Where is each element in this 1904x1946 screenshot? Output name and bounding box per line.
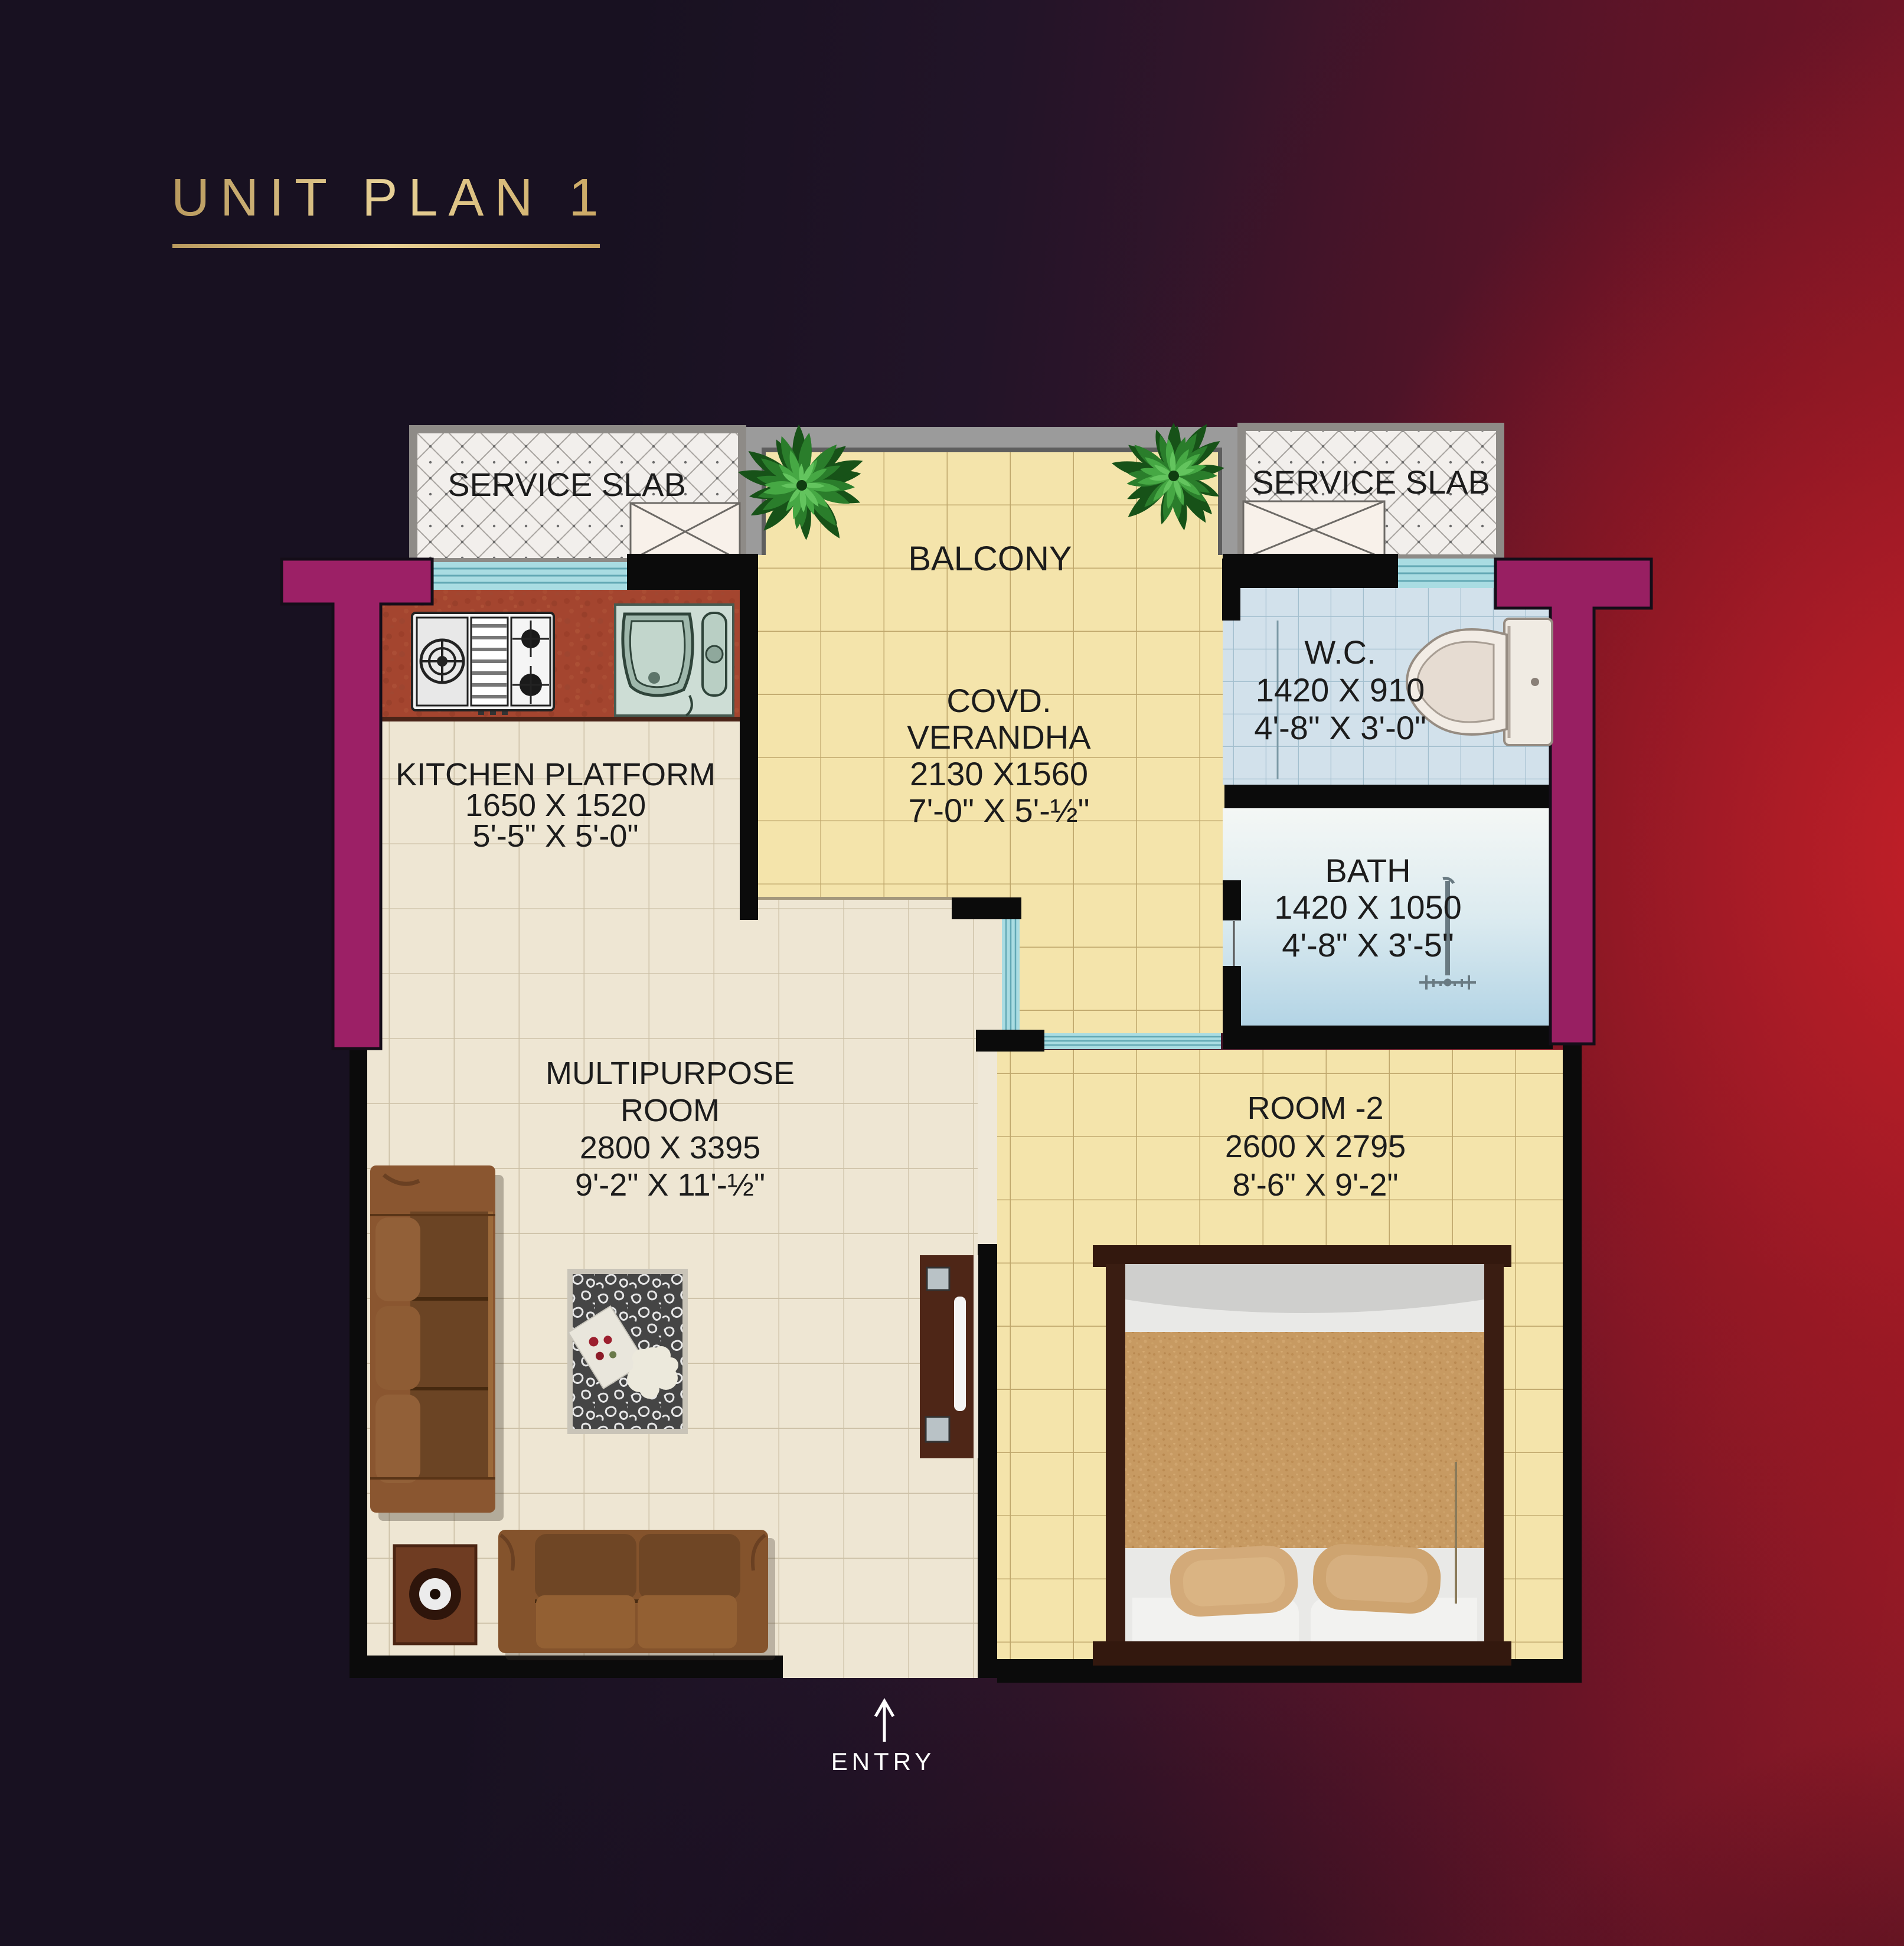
svg-text:COVD.: COVD.: [946, 682, 1051, 719]
svg-text:UNIT PLAN 1: UNIT PLAN 1: [171, 168, 609, 227]
svg-text:ROOM -2: ROOM -2: [1247, 1090, 1383, 1126]
svg-text:SERVICE SLAB: SERVICE SLAB: [448, 466, 686, 503]
svg-text:9'-2" X 11'-½": 9'-2" X 11'-½": [575, 1167, 765, 1203]
svg-text:4'-8" X 3'-0": 4'-8" X 3'-0": [1254, 709, 1426, 746]
svg-text:2800 X 3395: 2800 X 3395: [580, 1130, 760, 1165]
svg-text:ENTRY: ENTRY: [831, 1748, 936, 1775]
svg-text:KITCHEN PLATFORM: KITCHEN PLATFORM: [396, 757, 716, 792]
svg-text:BALCONY: BALCONY: [908, 540, 1072, 578]
svg-text:2600 X 2795: 2600 X 2795: [1225, 1129, 1406, 1164]
svg-text:1650 X 1520: 1650 X 1520: [465, 788, 646, 823]
svg-text:W.C.: W.C.: [1304, 634, 1376, 671]
svg-text:8'-6" X 9'-2": 8'-6" X 9'-2": [1232, 1167, 1398, 1203]
svg-text:2130 X1560: 2130 X1560: [910, 755, 1088, 792]
svg-text:5'-5" X 5'-0": 5'-5" X 5'-0": [472, 818, 638, 854]
svg-text:ROOM: ROOM: [620, 1093, 720, 1128]
svg-text:SERVICE SLAB: SERVICE SLAB: [1252, 463, 1490, 501]
svg-text:VERANDHA: VERANDHA: [907, 719, 1091, 756]
svg-text:1420 X 910: 1420 X 910: [1256, 671, 1425, 708]
svg-text:1420 X 1050: 1420 X 1050: [1274, 889, 1462, 926]
svg-text:7'-0" X 5'-½": 7'-0" X 5'-½": [908, 792, 1089, 829]
svg-text:MULTIPURPOSE: MULTIPURPOSE: [546, 1056, 795, 1091]
svg-text:BATH: BATH: [1325, 852, 1410, 889]
svg-text:4'-8" X 3'-5": 4'-8" X 3'-5": [1282, 926, 1454, 964]
